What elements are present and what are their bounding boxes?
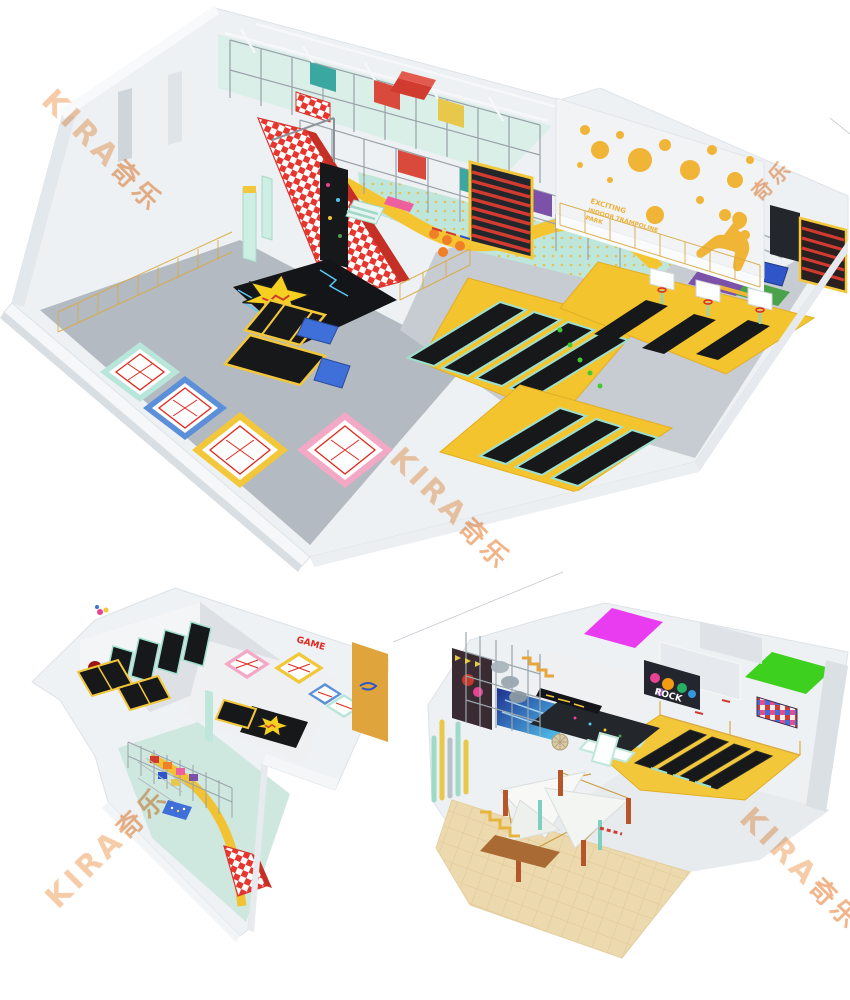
decal-dot	[97, 609, 103, 615]
mustard-wall	[352, 642, 388, 742]
climb-frame	[470, 162, 532, 258]
trampoline-park-renders-page: EXCITING INDOOR TRAMPOLINE PARK	[0, 0, 850, 1000]
park-renders-image: EXCITING INDOOR TRAMPOLINE PARK	[0, 0, 850, 1000]
render-bottom-right-park: ROCK	[428, 603, 848, 958]
cable-line	[830, 118, 850, 134]
decal-dot	[95, 605, 99, 609]
decal-dot	[104, 608, 109, 613]
watermark-latin: KIRA	[39, 823, 132, 916]
mint-partition	[205, 690, 213, 742]
spiral-stair	[552, 734, 568, 750]
